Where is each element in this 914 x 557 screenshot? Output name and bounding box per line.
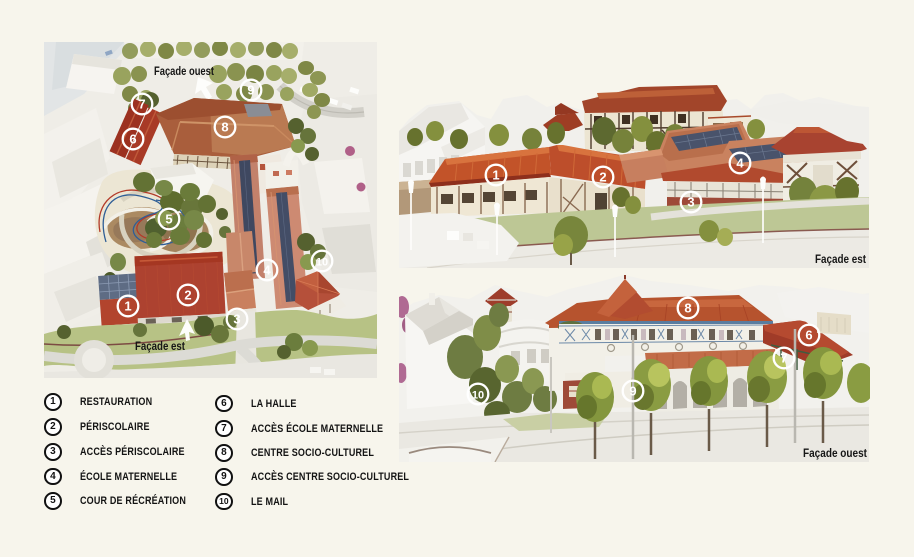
svg-text:4: 4 [736, 156, 744, 171]
svg-text:Façade est: Façade est [135, 341, 185, 353]
svg-text:1: 1 [492, 168, 499, 183]
svg-text:2: 2 [599, 170, 606, 185]
svg-text:8: 8 [684, 301, 691, 316]
svg-text:Façade ouest: Façade ouest [803, 448, 867, 460]
svg-text:Façade est: Façade est [815, 254, 866, 266]
svg-text:10: 10 [316, 257, 328, 269]
svg-text:10: 10 [472, 390, 484, 402]
svg-text:4: 4 [263, 263, 271, 278]
svg-text:1: 1 [124, 299, 131, 314]
svg-text:9: 9 [247, 83, 254, 98]
svg-text:5: 5 [165, 212, 172, 227]
svg-text:2: 2 [184, 288, 191, 303]
svg-text:6: 6 [805, 328, 812, 343]
svg-text:6: 6 [129, 132, 136, 147]
svg-text:9: 9 [629, 384, 636, 399]
svg-text:3: 3 [233, 312, 240, 327]
svg-text:8: 8 [221, 120, 228, 135]
svg-text:3: 3 [687, 195, 694, 210]
svg-text:Façade ouest: Façade ouest [154, 66, 214, 78]
svg-text:7: 7 [780, 351, 787, 366]
svg-text:7: 7 [138, 97, 145, 112]
